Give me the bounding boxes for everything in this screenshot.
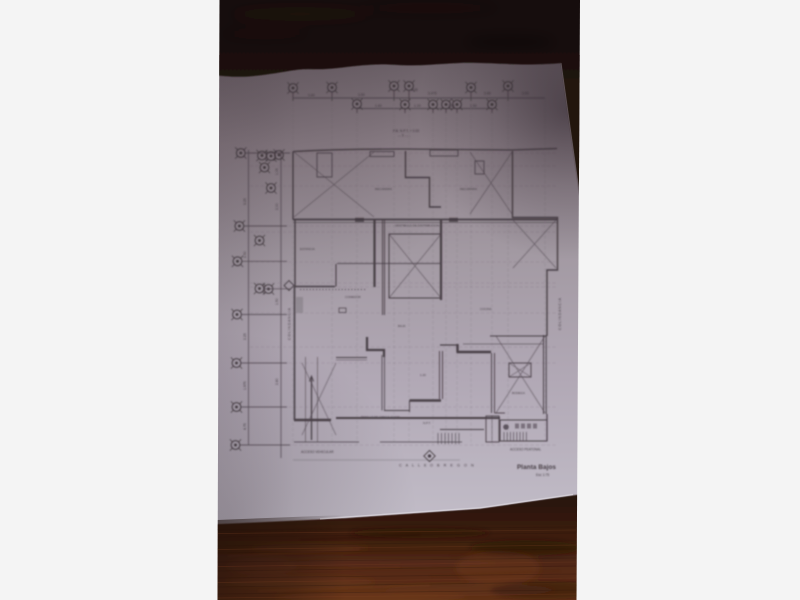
svg-text:2.50: 2.50 xyxy=(243,251,247,258)
svg-text:3.50: 3.50 xyxy=(358,93,365,97)
svg-text:1.20: 1.20 xyxy=(420,373,426,377)
svg-text:N.P.T.: N.P.T. xyxy=(423,421,431,425)
svg-text:1.05: 1.05 xyxy=(275,168,279,175)
svg-text:PASILLO DE CIRCULACION: PASILLO DE CIRCULACION xyxy=(361,415,400,419)
svg-text:BAJA: BAJA xyxy=(398,324,406,328)
svg-text:Esc 1:75: Esc 1:75 xyxy=(536,473,549,477)
svg-text:1.975: 1.975 xyxy=(243,381,247,390)
svg-text:1.50: 1.50 xyxy=(275,298,279,305)
svg-text:0.35: 0.35 xyxy=(411,88,418,92)
svg-text:3.50: 3.50 xyxy=(522,92,529,96)
svg-text:C O L I N D A N C I A: C O L I N D A N C I A xyxy=(288,307,292,340)
svg-text:1.50: 1.50 xyxy=(470,104,477,108)
svg-text:Planta Bajos: Planta Bajos xyxy=(517,464,556,471)
svg-text:O B R E G O N: O B R E G O N xyxy=(430,464,475,468)
svg-text:3.25: 3.25 xyxy=(243,198,247,205)
svg-text:ACCESO PEATONAL: ACCESO PEATONAL xyxy=(510,448,541,452)
svg-text:BODEGA: BODEGA xyxy=(512,391,525,395)
svg-text:RECAMARA: RECAMARA xyxy=(460,187,477,191)
svg-text:RECAMARA: RECAMARA xyxy=(375,187,392,191)
svg-text:1.60: 1.60 xyxy=(375,104,382,108)
svg-text:2.25: 2.25 xyxy=(243,333,247,340)
svg-text:1.20: 1.20 xyxy=(414,104,421,108)
svg-text:... 3 ......: ... 3 ...... xyxy=(398,134,410,138)
svg-text:C O L I N D A N C I A: C O L I N D A N C I A xyxy=(558,297,562,330)
svg-text:4.75: 4.75 xyxy=(243,423,247,430)
svg-text:P.B. N.P.T. + 0.00: P.B. N.P.T. + 0.00 xyxy=(393,129,419,133)
svg-text:2.00: 2.00 xyxy=(275,203,279,210)
svg-text:ESTANCIA: ESTANCIA xyxy=(300,247,315,251)
svg-text:3.60: 3.60 xyxy=(308,94,315,98)
svg-text:COMEDOR: COMEDOR xyxy=(345,295,362,299)
svg-text:1.15: 1.15 xyxy=(448,104,455,108)
svg-text:3.475: 3.475 xyxy=(428,92,437,96)
svg-text:ACCESO VEHICULAR: ACCESO VEHICULAR xyxy=(301,450,334,454)
svg-text:VESTIBULO DE DISTRIBUCION: VESTIBULO DE DISTRIBUCION xyxy=(395,224,439,228)
svg-text:2.80: 2.80 xyxy=(275,378,279,385)
svg-text:COCINA: COCINA xyxy=(480,307,492,311)
svg-text:3.65: 3.65 xyxy=(484,92,491,96)
svg-text:C A L L E: C A L L E xyxy=(399,464,428,468)
